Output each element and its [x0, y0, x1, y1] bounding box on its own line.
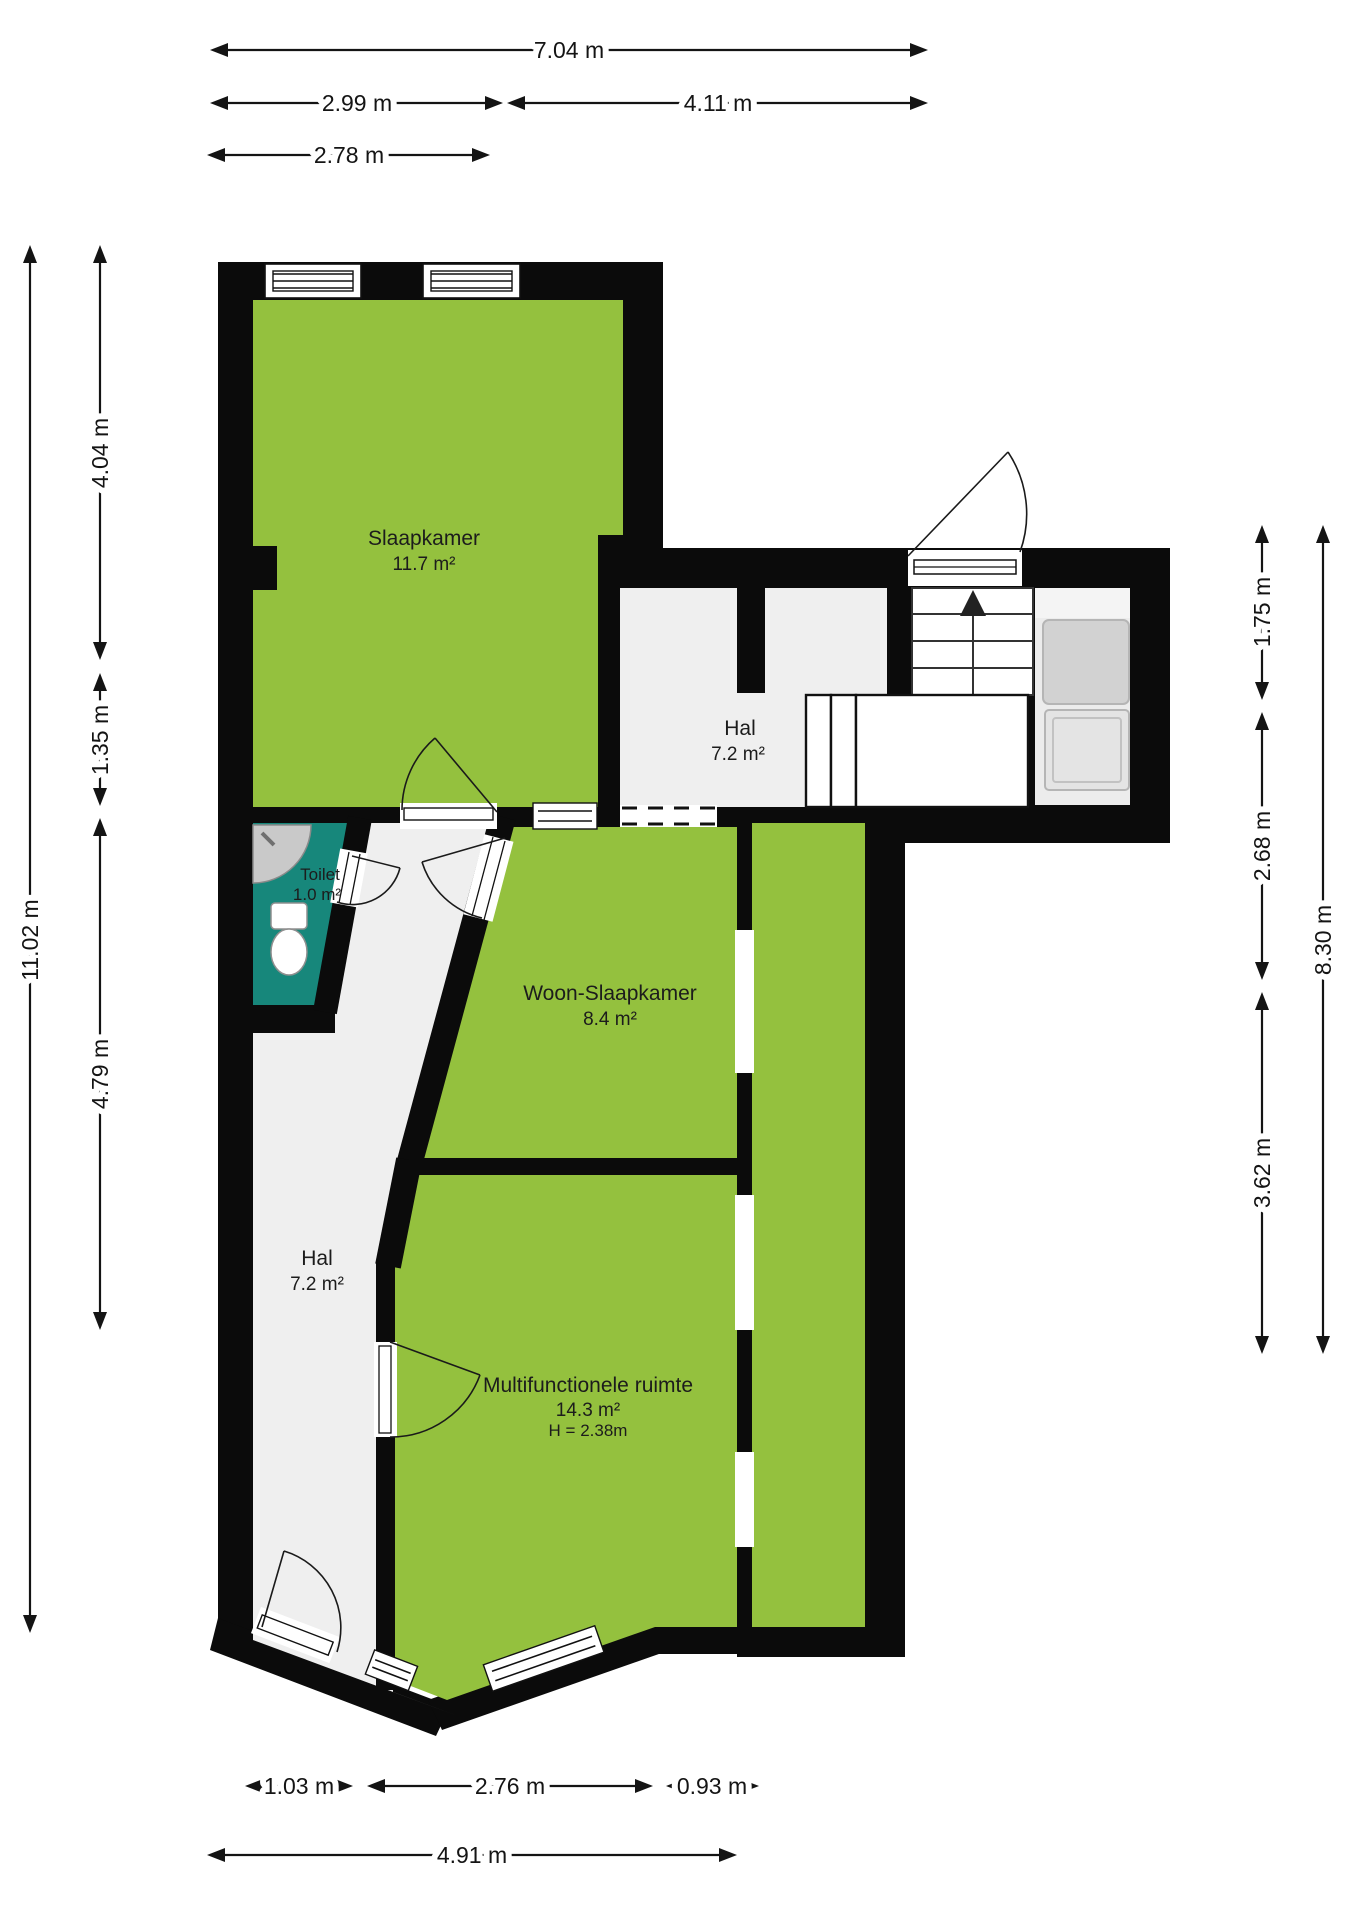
wall-opening: [735, 1452, 754, 1547]
room-height-multi: H = 2.38m: [549, 1421, 628, 1440]
room-area-toilet: 1.0 m²: [293, 885, 342, 904]
svg-text:1.35 m: 1.35 m: [87, 705, 113, 775]
dimension-right-1: 1.75 m: [1249, 525, 1275, 700]
dimension-right-total: 8.30 m: [1310, 525, 1336, 1354]
floor-plan: Slaapkamer 11.7 m² Hal 7.2 m² Toilet 1.0…: [0, 0, 1358, 1920]
room-label-toilet: Toilet: [300, 865, 340, 884]
wall-opening: [735, 930, 754, 1073]
svg-text:1.75 m: 1.75 m: [1249, 577, 1275, 647]
dimension-top-left: 2.99 m: [210, 90, 503, 116]
room-label-multi: Multifunctionele ruimte: [483, 1374, 693, 1397]
shower-tray-icon: [1045, 710, 1129, 790]
room-label-woon-slaapkamer: Woon-Slaapkamer: [523, 982, 697, 1005]
room-area-hal-boven: 7.2 m²: [711, 744, 765, 765]
svg-text:2.76 m: 2.76 m: [475, 1773, 545, 1799]
dimension-right-2: 2.68 m: [1249, 712, 1275, 980]
svg-text:4.11 m: 4.11 m: [684, 90, 753, 116]
svg-text:4.91 m: 4.91 m: [437, 1842, 507, 1868]
open-threshold: [620, 805, 717, 827]
svg-text:2.99 m: 2.99 m: [322, 90, 392, 116]
svg-text:7.04 m: 7.04 m: [534, 37, 604, 63]
dimension-bottom-3: 0.93 m: [666, 1773, 759, 1799]
dimension-left-1: 4.04 m: [87, 245, 113, 660]
svg-text:2.68 m: 2.68 m: [1249, 811, 1275, 881]
svg-text:1.03 m: 1.03 m: [264, 1773, 334, 1799]
room-label-hal-boven: Hal: [724, 717, 756, 740]
room-area-slaapkamer: 11.7 m²: [392, 554, 455, 575]
dimension-top-right: 4.11 m: [507, 90, 928, 116]
window: [423, 264, 520, 298]
dimension-right-3: 3.62 m: [1249, 992, 1275, 1354]
room-area-hal-beneden: 7.2 m²: [290, 1274, 344, 1295]
svg-text:4.04 m: 4.04 m: [87, 418, 113, 488]
dimension-bottom-2: 2.76 m: [367, 1773, 653, 1799]
dimension-bottom-1: 1.03 m: [245, 1773, 353, 1799]
cabinet: [806, 695, 831, 807]
door: [908, 452, 1027, 586]
dimension-bottom-total: 4.91 m: [207, 1842, 737, 1868]
window: [265, 264, 361, 298]
svg-text:11.02 m: 11.02 m: [17, 899, 43, 980]
room-area-woon-slaapkamer: 8.4 m²: [583, 1009, 637, 1030]
dimension-top-total: 7.04 m: [210, 37, 928, 63]
toilet-icon: [271, 903, 307, 975]
room-side-strip: [752, 823, 865, 1627]
staircase: [912, 588, 1033, 695]
floorplan-page: Slaapkamer 11.7 m² Hal 7.2 m² Toilet 1.0…: [0, 0, 1358, 1920]
dimension-left-2: 1.35 m: [87, 673, 113, 806]
room-area-multi: 14.3 m²: [556, 1400, 620, 1421]
svg-text:8.30 m: 8.30 m: [1310, 905, 1336, 975]
svg-text:3.62 m: 3.62 m: [1249, 1138, 1275, 1208]
svg-text:4.79 m: 4.79 m: [87, 1039, 113, 1109]
appliance-icon: [1043, 620, 1129, 704]
svg-text:2.78 m: 2.78 m: [314, 142, 384, 168]
wall-opening: [735, 1195, 754, 1330]
room-label-slaapkamer: Slaapkamer: [368, 527, 480, 550]
room-label-hal-beneden: Hal: [301, 1247, 333, 1270]
cabinet: [831, 695, 856, 807]
dimension-top-inner: 2.78 m: [207, 142, 490, 168]
dimension-left-total: 11.02 m: [17, 245, 43, 1633]
wall-pillar: [253, 546, 277, 590]
dimension-left-3: 4.79 m: [87, 818, 113, 1330]
cabinet: [856, 695, 1028, 807]
svg-text:0.93 m: 0.93 m: [677, 1773, 747, 1799]
interior-window: [533, 803, 597, 829]
